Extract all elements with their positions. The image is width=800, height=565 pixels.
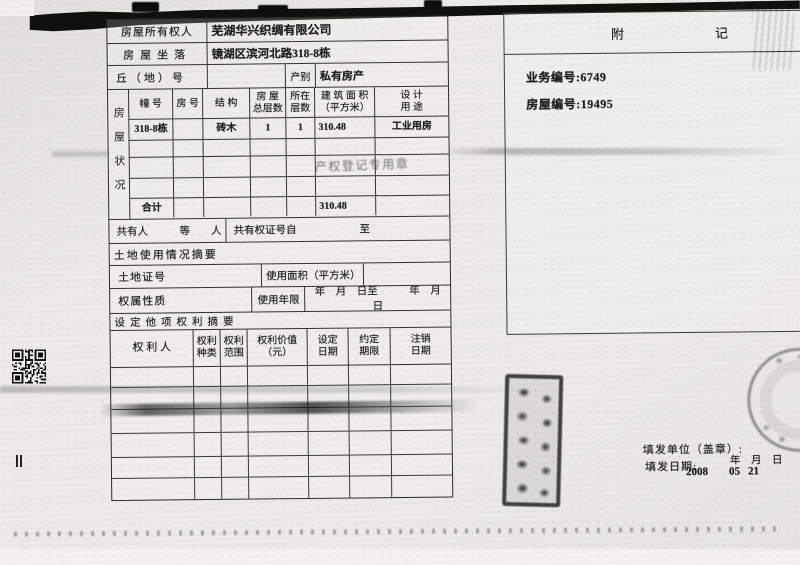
empty-row xyxy=(112,430,452,458)
area-value: 310.48 xyxy=(315,117,375,138)
rights-header-row: 权 利 人 权利种类 权利范围 权利价值（元） 设定日期 约定期限 注销日期 xyxy=(111,327,451,368)
rights-title: 设定他项权利摘要 xyxy=(110,313,242,330)
location-value: 镜湖区滨河北路318-8栋 xyxy=(208,42,335,64)
land-nature-row: 权属性质 使用年限 年 月 日至 年 月 日 xyxy=(110,285,450,314)
lot-number-row: 丘（地）号 产别 私有房产 xyxy=(108,62,448,90)
col-cancel-date: 注销日期 xyxy=(391,327,451,364)
circular-seal-stamp xyxy=(747,347,800,452)
building-no-value: 318-8栋 xyxy=(129,119,173,139)
col-set-date: 设定日期 xyxy=(308,329,349,365)
col-area: 建 筑 面 积（平方米） xyxy=(315,87,375,117)
col-right-holder: 权 利 人 xyxy=(111,330,194,367)
co-owner-row: 共有人 等 人 共有权证号自 至 xyxy=(109,216,449,244)
owner-label: 房屋所有权人 xyxy=(107,19,207,43)
property-category-label: 产别 xyxy=(286,64,316,87)
issue-year: 2008 xyxy=(686,466,708,478)
business-number: 业务编号:6749 xyxy=(526,65,800,85)
room-no-value xyxy=(173,119,203,139)
lot-number-value xyxy=(208,64,286,88)
total-row: 合计 310.48 xyxy=(130,195,449,217)
land-area-value xyxy=(364,263,372,285)
col-agreed-term: 约定期限 xyxy=(349,328,391,364)
issue-month: 05 xyxy=(729,465,740,477)
owner-row: 房屋所有权人 芜湖华兴织绸有限公司 xyxy=(107,16,447,44)
land-date-range: 年 月 日至 年 月 日 xyxy=(305,285,450,311)
designed-use-value: 工业用房 xyxy=(375,116,448,137)
house-status-grid: 幢 号 房 号 结 构 房 屋总层数 所在层数 建 筑 面 积（平方米） 设 计… xyxy=(129,86,449,218)
col-right-value: 权利价值（元） xyxy=(248,329,308,366)
double-bar-mark xyxy=(16,455,26,467)
col-right-type: 权利种类 xyxy=(194,330,221,366)
qr-code xyxy=(12,349,46,384)
col-structure: 结 构 xyxy=(203,89,250,118)
col-building-no: 幢 号 xyxy=(129,89,173,118)
property-category-value: 私有房产 xyxy=(316,63,368,87)
house-status-header-row: 幢 号 房 号 结 构 房 屋总层数 所在层数 建 筑 面 积（平方米） 设 计… xyxy=(129,86,448,119)
total-floors-value: 1 xyxy=(250,118,286,138)
empty-row xyxy=(111,406,451,434)
notes-panel: 附 记 业务编号:6749 房屋编号:19495 xyxy=(503,9,800,334)
house-status-section: 房屋状况 幢 号 房 号 结 构 房 屋总层数 所在层数 建 筑 面 积（平方米… xyxy=(108,86,449,220)
land-nature-label: 权属性质 xyxy=(110,288,253,313)
land-summary-title: 土地使用情况摘要 xyxy=(110,243,222,265)
issue-day: 21 xyxy=(748,465,759,477)
house-status-side-label: 房屋状况 xyxy=(108,90,130,219)
co-owner-label: 共有人 等 人 xyxy=(109,219,226,243)
col-total-floors: 房 屋总层数 xyxy=(250,88,286,117)
structure-value: 砖木 xyxy=(203,119,250,139)
col-floor: 所在层数 xyxy=(286,88,315,117)
house-number: 房屋编号:19495 xyxy=(526,92,800,112)
total-area-value: 310.48 xyxy=(316,196,376,216)
lot-number-label: 丘（地）号 xyxy=(108,65,208,89)
co-owner-cert-label: 共有权证号自 至 xyxy=(226,217,374,242)
total-label: 合计 xyxy=(130,198,174,217)
faint-registration-stamp-text: 产权登记专用章 xyxy=(315,155,410,175)
land-years-label: 使用年限 xyxy=(252,287,305,312)
notes-title: 附 记 xyxy=(504,10,800,54)
col-right-scope: 权利范围 xyxy=(221,330,248,366)
land-area-label: 使用面积（平方米） xyxy=(262,263,364,286)
land-cert-label: 土地证号 xyxy=(110,264,262,288)
vertical-ink-stamp xyxy=(502,374,563,507)
empty-row xyxy=(112,475,452,500)
col-room-no: 房 号 xyxy=(173,89,203,118)
owner-value: 芜湖华兴织绸有限公司 xyxy=(207,18,335,42)
floor-value: 1 xyxy=(286,118,315,138)
issue-unit-label: 填发单位（盖章）: xyxy=(643,440,743,457)
col-designed-use: 设 计用 途 xyxy=(375,86,448,116)
location-label: 房屋坐落 xyxy=(108,43,208,65)
scanned-document-page: 房屋所有权人 芜湖华兴织绸有限公司 房屋坐落 镜湖区滨河北路318-8栋 丘（地… xyxy=(0,0,800,565)
property-registration-form: 房屋所有权人 芜湖华兴织绸有限公司 房屋坐落 镜湖区滨河北路318-8栋 丘（地… xyxy=(106,15,453,501)
